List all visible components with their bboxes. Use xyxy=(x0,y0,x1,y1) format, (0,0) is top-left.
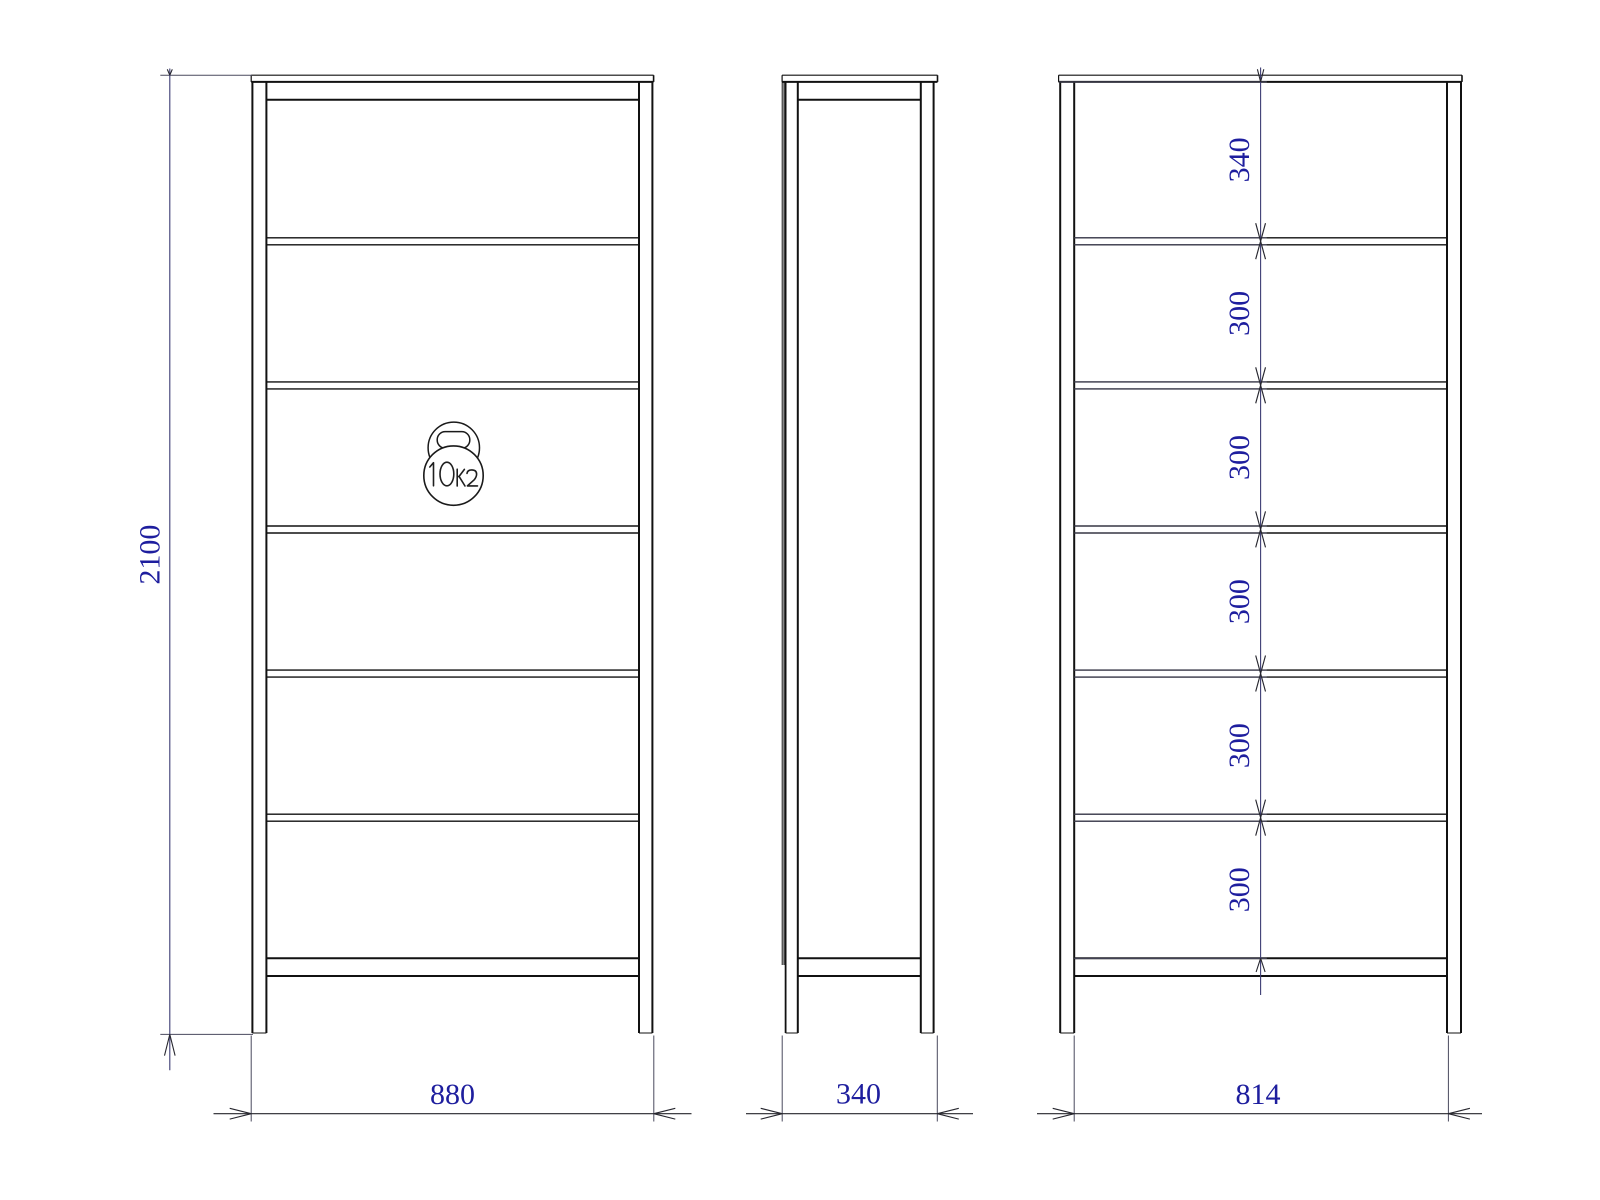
svg-text:300: 300 xyxy=(1223,867,1256,912)
svg-text:300: 300 xyxy=(1223,723,1256,768)
svg-text:300: 300 xyxy=(1223,579,1256,624)
svg-text:2100: 2100 xyxy=(134,525,167,585)
svg-text:340: 340 xyxy=(1223,137,1256,182)
svg-text:340: 340 xyxy=(836,1078,881,1111)
svg-text:880: 880 xyxy=(430,1078,475,1111)
svg-text:814: 814 xyxy=(1236,1078,1281,1111)
svg-text:300: 300 xyxy=(1223,435,1256,480)
svg-text:300: 300 xyxy=(1223,291,1256,336)
